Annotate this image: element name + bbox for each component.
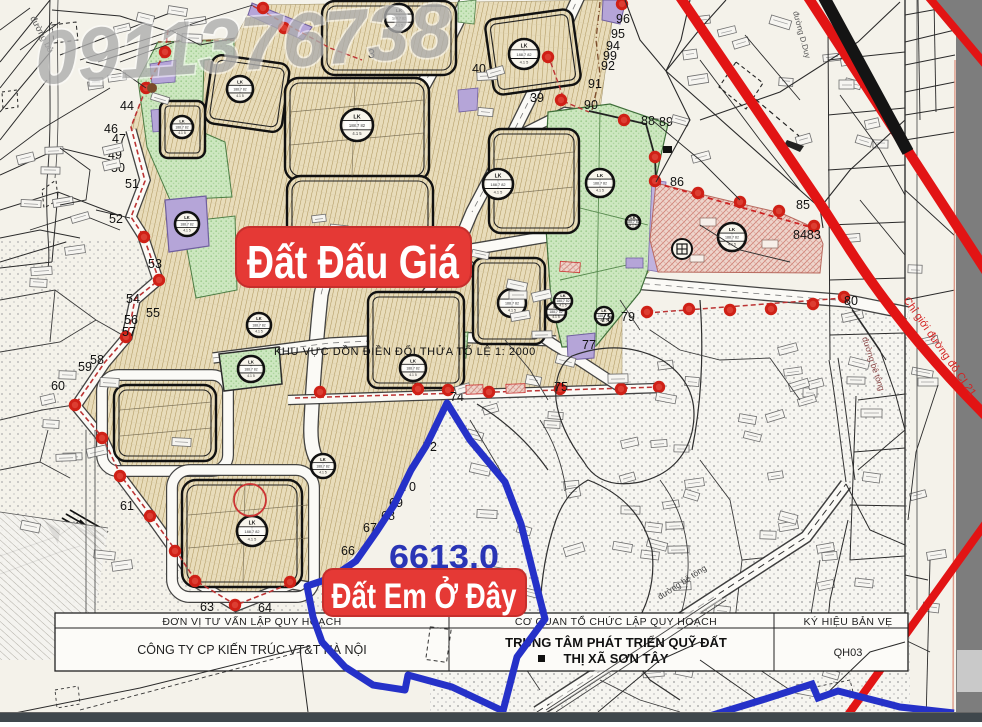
svg-text:4.1 5: 4.1 5 xyxy=(508,309,516,313)
svg-text:4.1 5: 4.1 5 xyxy=(552,315,560,319)
svg-text:LK: LK xyxy=(249,521,256,527)
svg-text:188.7 82: 188.7 82 xyxy=(175,125,188,129)
svg-text:188.7 82: 188.7 82 xyxy=(490,182,505,187)
svg-text:188.7 82: 188.7 82 xyxy=(252,323,265,327)
svg-text:86: 86 xyxy=(670,175,684,189)
svg-text:188.7 82: 188.7 82 xyxy=(516,52,531,57)
svg-text:51: 51 xyxy=(125,177,139,191)
svg-text:188.7 82: 188.7 82 xyxy=(180,222,193,226)
svg-text:91: 91 xyxy=(588,77,602,91)
svg-text:94: 94 xyxy=(606,39,620,53)
svg-text:58: 58 xyxy=(90,353,104,367)
svg-text:Đất Đấu Giá: Đất Đấu Giá xyxy=(247,236,459,288)
svg-text:44: 44 xyxy=(120,99,134,113)
svg-text:4.1 5: 4.1 5 xyxy=(494,189,503,194)
svg-text:57: 57 xyxy=(122,325,136,339)
svg-text:4.1 5: 4.1 5 xyxy=(178,131,186,135)
svg-text:4.1 5: 4.1 5 xyxy=(629,223,637,227)
svg-text:LK: LK xyxy=(256,316,261,321)
svg-text:188.7 82: 188.7 82 xyxy=(593,182,607,186)
svg-text:4.1 5: 4.1 5 xyxy=(255,329,263,333)
svg-text:LK: LK xyxy=(179,118,184,123)
svg-text:188.7 82: 188.7 82 xyxy=(349,123,366,128)
svg-text:85: 85 xyxy=(796,198,810,212)
svg-text:89: 89 xyxy=(659,115,673,129)
svg-text:188.7 82: 188.7 82 xyxy=(316,464,329,468)
svg-text:78: 78 xyxy=(600,311,614,325)
svg-text:4.1 5: 4.1 5 xyxy=(596,189,604,193)
svg-text:4.1 5: 4.1 5 xyxy=(352,131,362,136)
svg-text:188.7 82: 188.7 82 xyxy=(244,529,259,534)
svg-text:THỊ XÃ SƠN TÂY: THỊ XÃ SƠN TÂY xyxy=(564,651,669,666)
svg-text:53: 53 xyxy=(148,257,162,271)
svg-text:4.1 5: 4.1 5 xyxy=(183,228,191,232)
svg-text:KÝ HIỆU BẢN VẸ: KÝ HIỆU BẢN VẸ xyxy=(803,615,892,628)
svg-text:4.1 5: 4.1 5 xyxy=(409,373,417,377)
svg-text:54: 54 xyxy=(126,292,140,306)
svg-text:4.1 5: 4.1 5 xyxy=(247,374,255,378)
svg-text:LK: LK xyxy=(184,215,189,220)
svg-text:188.7 82: 188.7 82 xyxy=(725,236,739,240)
svg-text:TRUNG TÂM PHÁT TRIỂN QUỸ ĐẤT: TRUNG TÂM PHÁT TRIỂN QUỸ ĐẤT xyxy=(505,635,727,650)
svg-text:LK: LK xyxy=(248,360,255,365)
svg-text:LK: LK xyxy=(729,227,736,233)
svg-text:52: 52 xyxy=(109,212,123,226)
svg-text:LK: LK xyxy=(597,173,604,179)
svg-text:95: 95 xyxy=(611,27,625,41)
svg-text:LK: LK xyxy=(410,359,417,364)
svg-text:LK: LK xyxy=(320,457,325,462)
svg-text:4.1 5: 4.1 5 xyxy=(520,59,529,64)
svg-text:4.1 5: 4.1 5 xyxy=(319,470,327,474)
svg-text:90: 90 xyxy=(584,98,598,112)
svg-text:60: 60 xyxy=(51,379,65,393)
svg-text:66: 66 xyxy=(341,544,355,558)
svg-text:188.7 82: 188.7 82 xyxy=(244,368,257,372)
svg-text:QH03: QH03 xyxy=(834,647,863,659)
svg-text:61: 61 xyxy=(120,499,134,513)
svg-text:59: 59 xyxy=(78,360,92,374)
svg-text:188.7 82: 188.7 82 xyxy=(505,302,519,306)
svg-text:4.1 5: 4.1 5 xyxy=(248,536,257,541)
svg-text:LK: LK xyxy=(521,44,528,50)
svg-text:188.7 82: 188.7 82 xyxy=(406,367,419,371)
svg-text:55: 55 xyxy=(146,306,160,320)
svg-text:LK: LK xyxy=(495,174,502,180)
svg-text:96: 96 xyxy=(616,12,630,26)
svg-text:63: 63 xyxy=(200,600,214,614)
svg-text:Đất Em Ở Đây: Đất Em Ở Đây xyxy=(332,576,517,616)
svg-text:8483: 8483 xyxy=(793,228,821,242)
svg-text:4.1 5: 4.1 5 xyxy=(236,94,244,98)
svg-text:LK: LK xyxy=(560,293,565,298)
svg-text:KHU VỰC DỒN ĐIỀN ĐỔI THỬA TỐ L: KHU VỰC DỒN ĐIỀN ĐỔI THỬA TỐ LỆ 1: 2000 xyxy=(274,344,536,358)
svg-text:188.7 82: 188.7 82 xyxy=(556,299,569,303)
svg-text:188.7 82: 188.7 82 xyxy=(233,88,246,92)
svg-text:39: 39 xyxy=(530,91,544,105)
svg-text:LK: LK xyxy=(353,114,360,120)
svg-text:4.1 5: 4.1 5 xyxy=(559,304,567,308)
